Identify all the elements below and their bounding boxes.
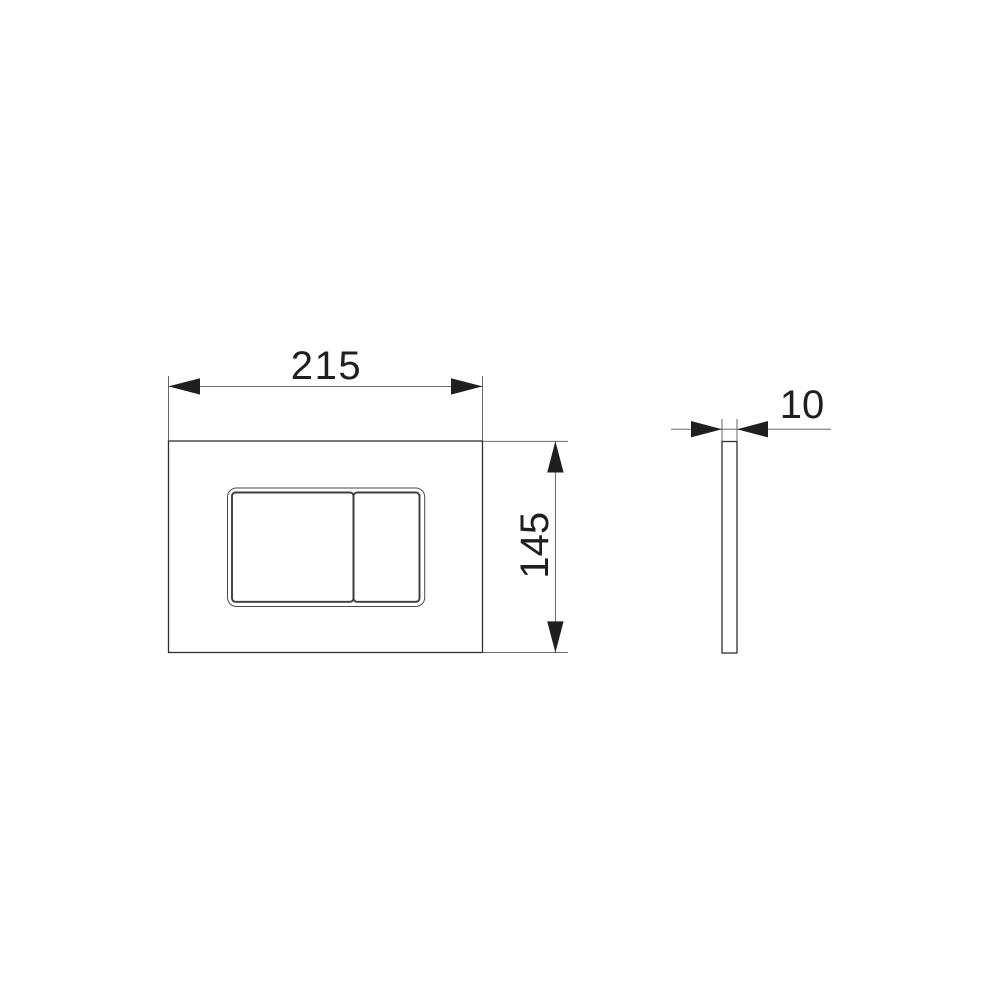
svg-text:10: 10 (780, 383, 825, 427)
svg-text:145: 145 (513, 512, 557, 579)
svg-text:215: 215 (291, 344, 363, 388)
